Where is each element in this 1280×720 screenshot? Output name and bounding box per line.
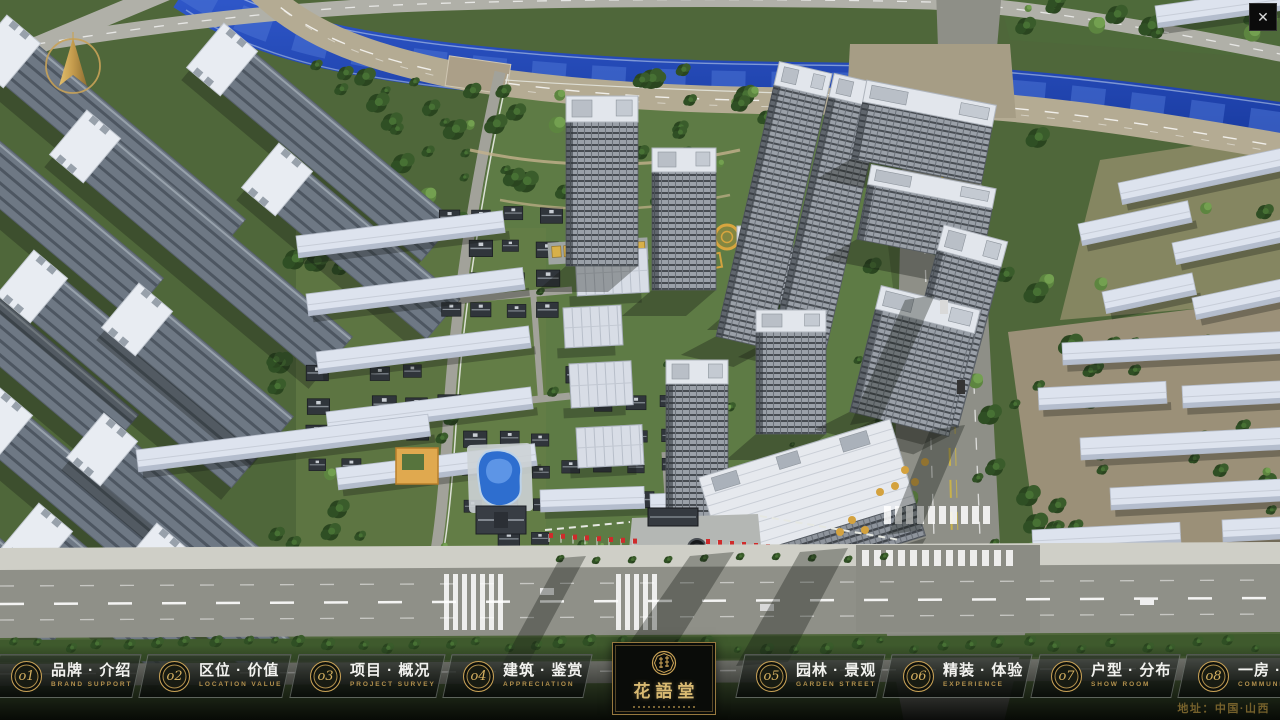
app-window: ✕ o1 品牌 · 介绍 BRAND SUPPORT o2 区位 · 价值 LO… — [0, 0, 1280, 720]
menu-item-landscape[interactable]: o5 园林 · 景观 GARDEN STREET — [735, 654, 886, 698]
bottom-nav-bar: o1 品牌 · 介绍 BRAND SUPPORT o2 区位 · 价值 LOCA… — [0, 645, 1280, 720]
menu-item-sublabel: BRAND SUPPORT — [51, 682, 132, 689]
menu-item-number-badge: o7 — [1051, 661, 1082, 692]
menu-item-room-view[interactable]: o8 一房 · 一景 COMMUNITY — [1177, 654, 1280, 698]
menu-item-number-badge: o8 — [1198, 661, 1229, 692]
menu-item-number-badge: o4 — [463, 661, 494, 692]
menu-item-architecture[interactable]: o4 建筑 · 鉴赏 APPRECIATION — [442, 654, 593, 698]
menu-item-project[interactable]: o3 项目 · 概况 PROJECT SURVEY — [289, 654, 445, 698]
menu-item-number-badge: o3 — [310, 661, 341, 692]
brand-name: 花語堂 — [628, 677, 699, 702]
menu-item-label: 建筑 · 鉴赏 — [503, 663, 583, 678]
menu-item-sublabel: LOCATION VALUE — [199, 682, 282, 689]
close-icon: ✕ — [1257, 10, 1269, 24]
menu-item-floorplan[interactable]: o7 户型 · 分布 SHOW ROOM — [1030, 654, 1181, 698]
menu-item-sublabel: COMMUNITY — [1238, 682, 1280, 689]
menu-item-brand[interactable]: o1 品牌 · 介绍 BRAND SUPPORT — [0, 654, 142, 698]
menu-item-sublabel: SHOW ROOM — [1091, 682, 1171, 689]
menu-item-label: 项目 · 概况 — [350, 663, 436, 678]
brand-logo-slot: 花語堂 — [591, 645, 737, 720]
menu-item-interior[interactable]: o6 精装 · 体验 EXPERIENCE — [883, 654, 1034, 698]
brand-tagline-rule — [633, 706, 695, 708]
menu-item-number-badge: o1 — [11, 661, 42, 692]
menu-item-sublabel: APPRECIATION — [503, 682, 583, 689]
menu-item-sublabel: PROJECT SURVEY — [350, 682, 436, 689]
brand-seal-icon — [651, 650, 677, 676]
menu-item-label: 户型 · 分布 — [1091, 663, 1171, 678]
brand-logo: 花語堂 — [612, 642, 716, 715]
menu-item-label: 精装 · 体验 — [943, 663, 1023, 678]
menu-item-sublabel: EXPERIENCE — [943, 682, 1023, 689]
close-button[interactable]: ✕ — [1249, 3, 1277, 31]
menu-item-label: 园林 · 景观 — [796, 663, 876, 678]
project-address: 地址：中国·山西 — [1177, 700, 1270, 716]
compass-icon — [40, 30, 106, 100]
menu-item-number-badge: o5 — [756, 661, 787, 692]
site-plan-render[interactable] — [0, 0, 1280, 720]
menu-item-label: 一房 · 一景 — [1238, 663, 1280, 678]
menu-item-label: 区位 · 价值 — [199, 663, 282, 678]
menu-item-sublabel: GARDEN STREET — [796, 682, 876, 689]
menu-item-location[interactable]: o2 区位 · 价值 LOCATION VALUE — [139, 654, 293, 698]
menu-item-number-badge: o2 — [159, 661, 190, 692]
menu-item-label: 品牌 · 介绍 — [51, 663, 132, 678]
menu-item-number-badge: o6 — [903, 661, 934, 692]
